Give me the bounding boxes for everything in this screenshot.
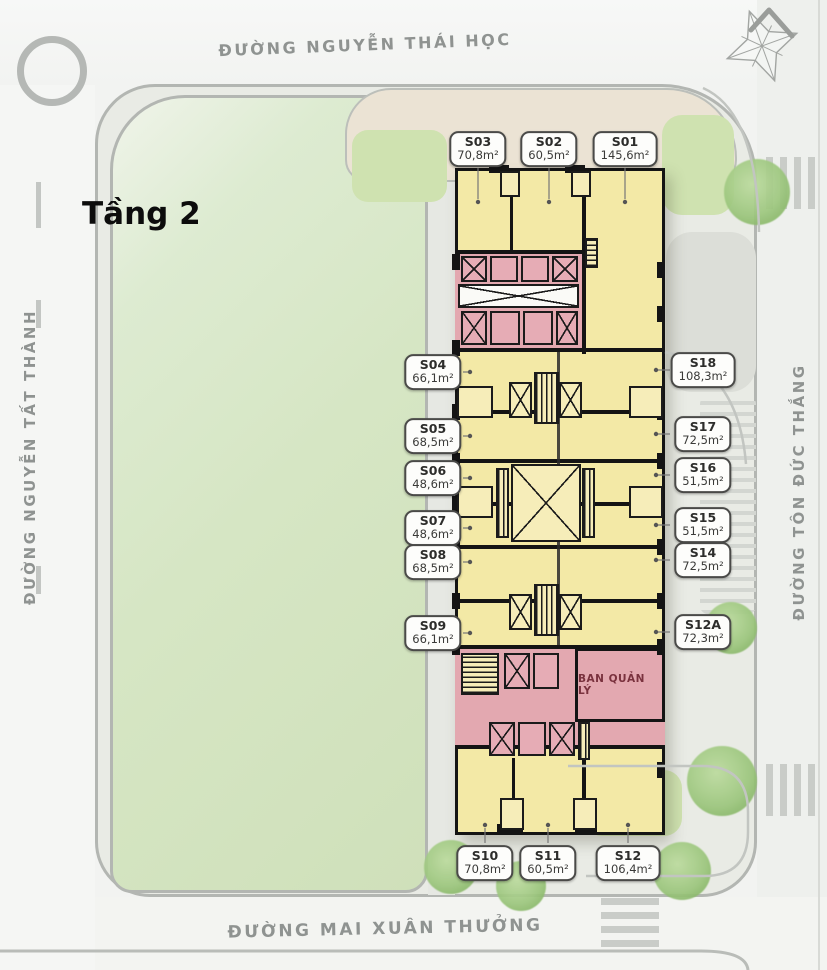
unit-label-S15[interactable]: S1551,5m² [674, 507, 731, 543]
unit-id: S14 [682, 546, 723, 560]
floor-title: Tầng 2 [82, 196, 201, 232]
unit-label-S09[interactable]: S0966,1m² [404, 615, 461, 651]
unit-label-S04[interactable]: S0466,1m² [404, 354, 461, 390]
unit-label-S03[interactable]: S0370,8m² [449, 131, 506, 167]
unit-area: 51,5m² [682, 525, 723, 538]
interior-wall [455, 645, 665, 649]
unit-label-S06[interactable]: S0648,6m² [404, 460, 461, 496]
unit-area: 60,5m² [527, 863, 568, 876]
fixture-pod [500, 798, 524, 830]
wall-stub [452, 593, 460, 609]
wall-stub [657, 306, 665, 322]
crosswalk-right-bottom [766, 764, 822, 816]
unit-label-S16[interactable]: S1651,5m² [674, 457, 731, 493]
fixture-pod [518, 722, 546, 756]
fixture-pod [629, 386, 663, 418]
unit-id: S11 [527, 849, 568, 863]
fixture-pod [490, 256, 518, 282]
unit-area: 68,5m² [412, 562, 453, 575]
fixture-pod [457, 386, 493, 418]
unit-label-S08[interactable]: S0868,5m² [404, 544, 461, 580]
wall-stub [657, 639, 665, 655]
elevator-shaft-symbol [559, 594, 582, 630]
unit-id: S02 [528, 135, 569, 149]
unit-area: 72,5m² [682, 560, 723, 573]
unit-id: S01 [601, 135, 650, 149]
unit-id: S04 [412, 358, 453, 372]
site-plan-canvas: BAN QUẢN LÝ S0370,8m²S0260,5m²S01145,6m²… [0, 0, 827, 970]
fixture-pod [490, 311, 520, 345]
unit-id: S17 [682, 420, 723, 434]
unit-id: S06 [412, 464, 453, 478]
unit-id: S12A [682, 618, 723, 632]
unit-area: 48,6m² [412, 478, 453, 491]
fixture-pod [500, 171, 520, 197]
unit-area: 145,6m² [601, 149, 650, 162]
elevator-shaft-symbol [511, 464, 581, 542]
fixture-pod [533, 653, 559, 689]
elevator-shaft-symbol [552, 256, 578, 282]
unit-area: 51,5m² [682, 475, 723, 488]
unit-label-S17[interactable]: S1772,5m² [674, 416, 731, 452]
lawn-patch [662, 115, 734, 215]
street-name-right: ĐƯỜNG TÔN ĐỨC THẮNG [790, 363, 808, 620]
unit-id: S18 [679, 356, 728, 370]
elevator-shaft-symbol [556, 311, 578, 345]
unit-label-S07[interactable]: S0748,6m² [404, 510, 461, 546]
unit-id: S16 [682, 461, 723, 475]
unit-label-S01[interactable]: S01145,6m² [593, 131, 658, 167]
traffic-circle [17, 36, 87, 106]
elevator-shaft-symbol [509, 382, 532, 418]
elevator-shaft-symbol [461, 256, 487, 282]
wall-stub [657, 453, 665, 469]
stairs-symbol [496, 468, 509, 538]
wall-stub [657, 762, 665, 778]
unit-area: 70,8m² [457, 149, 498, 162]
elevator-shaft-symbol [559, 382, 582, 418]
unit-label-S18[interactable]: S18108,3m² [671, 352, 736, 388]
street-name-left: ĐƯỜNG NGUYỄN TẤT THÀNH [21, 309, 39, 605]
unit-id: S10 [464, 849, 505, 863]
lawn-patch [352, 130, 447, 202]
unit-label-S12[interactable]: S12106,4m² [596, 845, 661, 881]
unit-id: S03 [457, 135, 498, 149]
unit-label-S12A[interactable]: S12A72,3m² [674, 614, 731, 650]
unit-label-S11[interactable]: S1160,5m² [519, 845, 576, 881]
wall-stub [452, 254, 460, 270]
tree-icon [687, 746, 757, 816]
stairs-symbol [582, 468, 595, 538]
fixture-pod [521, 256, 549, 282]
fixture-pod [457, 486, 493, 518]
interior-wall [455, 250, 585, 254]
unit-label-S05[interactable]: S0568,5m² [404, 418, 461, 454]
unit-area: 48,6m² [412, 528, 453, 541]
elevator-shaft-symbol [509, 594, 532, 630]
management-room: BAN QUẢN LÝ [575, 648, 665, 722]
unit-area: 60,5m² [528, 149, 569, 162]
tree-icon [653, 842, 711, 900]
unit-id: S15 [682, 511, 723, 525]
stairs-symbol [534, 584, 559, 636]
fixture-pod [571, 171, 591, 197]
unit-label-S10[interactable]: S1070,8m² [456, 845, 513, 881]
fixture-pod [523, 311, 553, 345]
stairs-symbol [585, 238, 598, 268]
unit-id: S07 [412, 514, 453, 528]
unit-id: S09 [412, 619, 453, 633]
elevator-shaft-symbol [461, 311, 487, 345]
wall-stub [657, 262, 665, 278]
crosswalk-bottom [601, 891, 659, 947]
unit-area: 66,1m² [412, 372, 453, 385]
unit-area: 106,4m² [604, 863, 653, 876]
lane-dash [36, 182, 41, 228]
fixture-pod [573, 798, 597, 830]
unit-id: S05 [412, 422, 453, 436]
unit-label-S14[interactable]: S1472,5m² [674, 542, 731, 578]
tree-icon [724, 159, 790, 225]
unit-id: S08 [412, 548, 453, 562]
interior-wall [455, 459, 665, 463]
stairs-symbol [534, 372, 559, 424]
fixture-pod [629, 486, 663, 518]
management-room-label: BAN QUẢN LÝ [578, 673, 662, 697]
wall-stub [657, 593, 665, 609]
stairs-symbol [578, 722, 590, 760]
unit-area: 72,5m² [682, 434, 723, 447]
unit-id: S12 [604, 849, 653, 863]
elevator-shaft-symbol [504, 653, 530, 689]
unit-area: 72,3m² [682, 632, 723, 645]
interior-wall [455, 348, 665, 352]
road-left [0, 85, 95, 970]
wall-stub [657, 539, 665, 555]
elevator-shaft-symbol [549, 722, 575, 756]
elevator-shaft-symbol [458, 284, 579, 308]
unit-label-S02[interactable]: S0260,5m² [520, 131, 577, 167]
unit-area: 108,3m² [679, 370, 728, 383]
unit-area: 70,8m² [464, 863, 505, 876]
interior-wall [455, 545, 665, 549]
unit-area: 66,1m² [412, 633, 453, 646]
unit-area: 68,5m² [412, 436, 453, 449]
stairs-symbol [461, 653, 499, 695]
elevator-shaft-symbol [489, 722, 515, 756]
